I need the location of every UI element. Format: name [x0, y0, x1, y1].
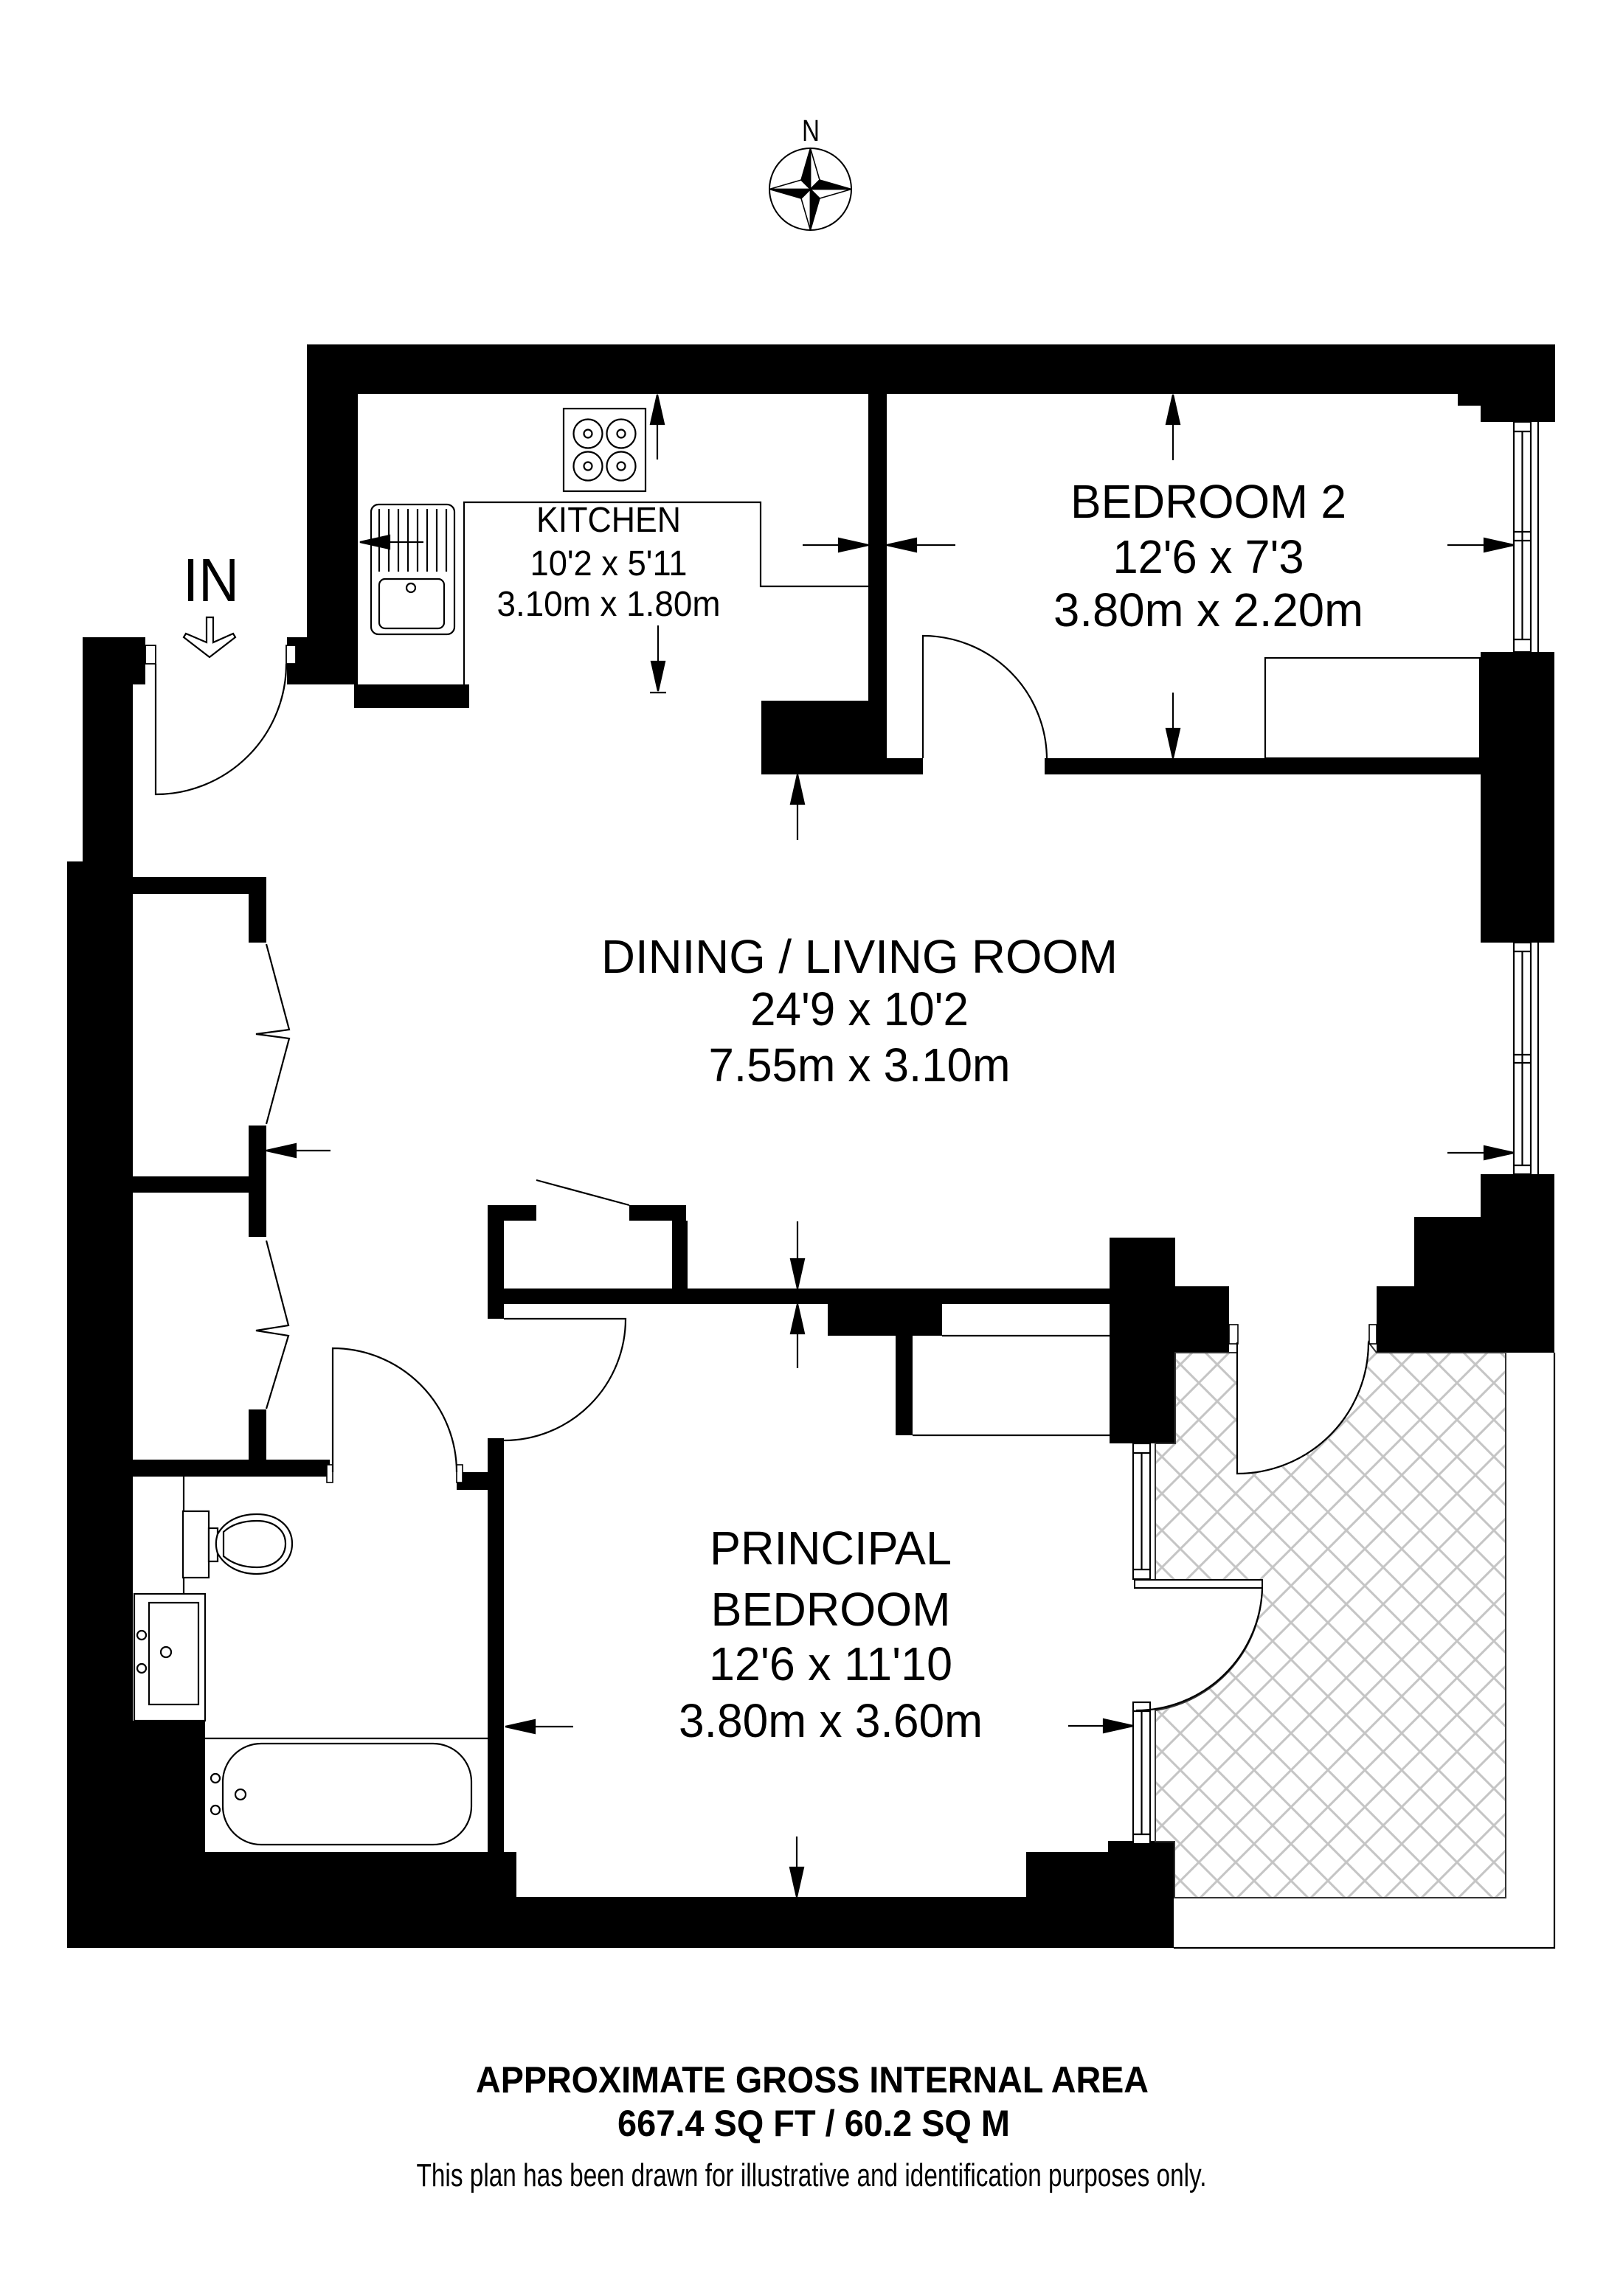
- svg-text:3.80m x 3.60m: 3.80m x 3.60m: [679, 1694, 983, 1747]
- svg-text:24'9 x 10'2: 24'9 x 10'2: [750, 982, 969, 1036]
- svg-text:667.4 SQ FT / 60.2 SQ M: 667.4 SQ FT / 60.2 SQ M: [617, 2103, 1010, 2144]
- svg-text:APPROXIMATE GROSS INTERNAL ARE: APPROXIMATE GROSS INTERNAL AREA: [476, 2059, 1149, 2101]
- svg-text:10'2 x 5'11: 10'2 x 5'11: [530, 544, 688, 583]
- svg-text:This plan has been drawn for i: This plan has been drawn for illustrativ…: [417, 2157, 1207, 2193]
- svg-text:PRINCIPAL: PRINCIPAL: [710, 1522, 952, 1575]
- svg-text:BEDROOM 2: BEDROOM 2: [1070, 475, 1346, 528]
- svg-text:7.55m x 3.10m: 7.55m x 3.10m: [709, 1038, 1011, 1092]
- svg-text:IN: IN: [183, 546, 239, 614]
- svg-text:N: N: [802, 114, 820, 148]
- svg-text:12'6 x 11'10: 12'6 x 11'10: [709, 1637, 952, 1690]
- svg-text:BEDROOM: BEDROOM: [711, 1583, 951, 1636]
- svg-text:KITCHEN: KITCHEN: [536, 501, 681, 540]
- svg-text:12'6 x 7'3: 12'6 x 7'3: [1113, 530, 1304, 583]
- svg-text:3.10m x 1.80m: 3.10m x 1.80m: [497, 585, 721, 624]
- svg-text:3.80m x 2.20m: 3.80m x 2.20m: [1053, 583, 1363, 637]
- svg-text:DINING / LIVING ROOM: DINING / LIVING ROOM: [601, 930, 1118, 983]
